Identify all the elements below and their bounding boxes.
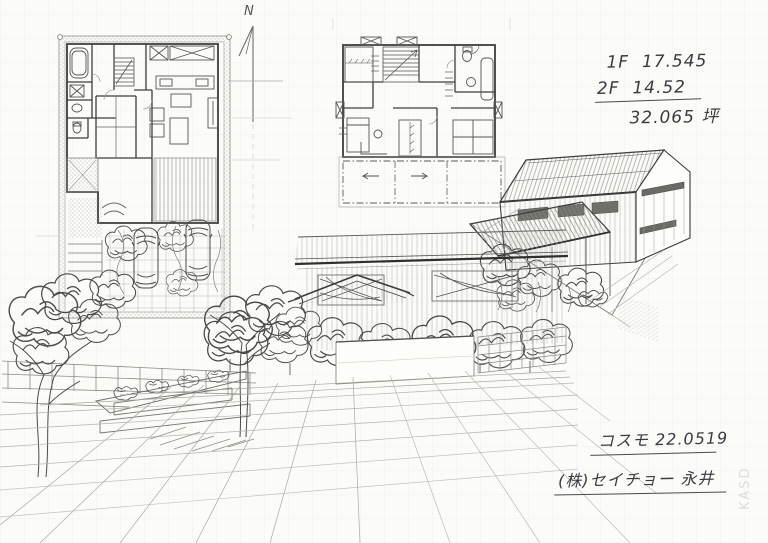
project-code: コスモ 22.0519	[598, 424, 729, 451]
area-floor2: 2F 14.52	[597, 77, 719, 99]
sketch-sheet: N	[0, 0, 768, 543]
company-signature: (株)セイチョー 永井	[558, 465, 726, 492]
area-floor1: 1F 17.545	[606, 51, 718, 73]
company-block: (株)セイチョー 永井	[558, 465, 726, 496]
project-code-block: コスモ 22.0519	[598, 424, 729, 455]
watermark: KASD	[738, 467, 753, 510]
area-notes: 1F 17.545 2F 14.52 32.065 坪	[584, 51, 719, 129]
area-total: 32.065 坪	[629, 102, 719, 129]
